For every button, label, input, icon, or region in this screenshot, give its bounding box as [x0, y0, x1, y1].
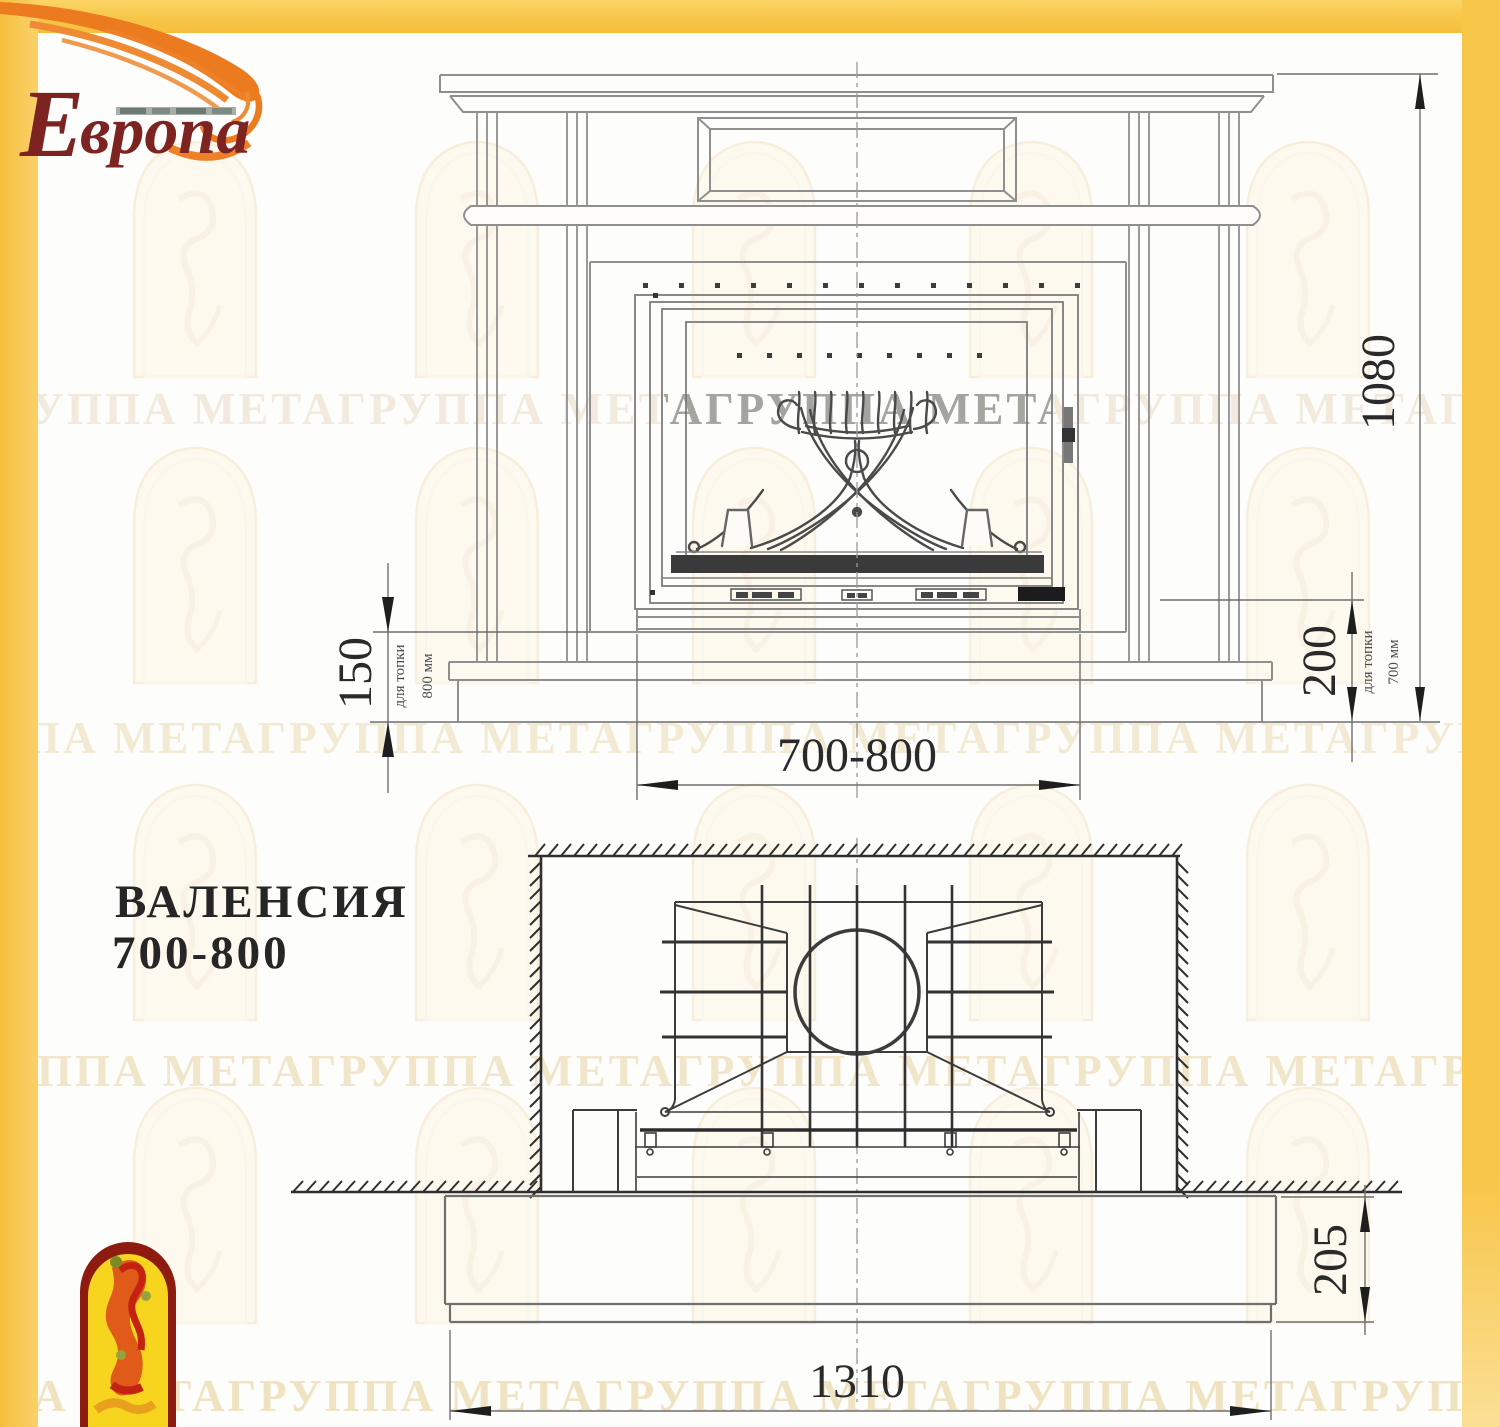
svg-text:150: 150	[329, 637, 382, 709]
svg-text:ГРУППА МЕТАГРУППА МЕТАГРУППА М: ГРУППА МЕТАГРУППА МЕТАГРУППА МЕТАГРУППА …	[0, 1371, 1500, 1421]
svg-text:800 мм: 800 мм	[420, 653, 436, 699]
svg-text:205: 205	[1304, 1224, 1357, 1296]
svg-text:700-800: 700-800	[112, 927, 290, 979]
svg-text:для топки: для топки	[1360, 631, 1376, 694]
svg-text:700-800: 700-800	[777, 729, 937, 782]
svg-text:вропа: вропа	[80, 92, 250, 168]
svg-text:ВАЛЕНСИЯ: ВАЛЕНСИЯ	[115, 876, 409, 928]
svg-text:ГРУППА МЕТАГРУППА МЕТАГРУППА М: ГРУППА МЕТАГРУППА МЕТАГРУППА МЕТАГРУППА …	[0, 713, 1500, 763]
svg-text:700 мм: 700 мм	[1386, 639, 1402, 685]
svg-text:1080: 1080	[1352, 334, 1405, 430]
svg-text:Е: Е	[19, 70, 84, 177]
svg-text:для топки: для топки	[392, 645, 408, 708]
svg-text:1310: 1310	[809, 1355, 905, 1408]
svg-text:200: 200	[1293, 625, 1346, 697]
